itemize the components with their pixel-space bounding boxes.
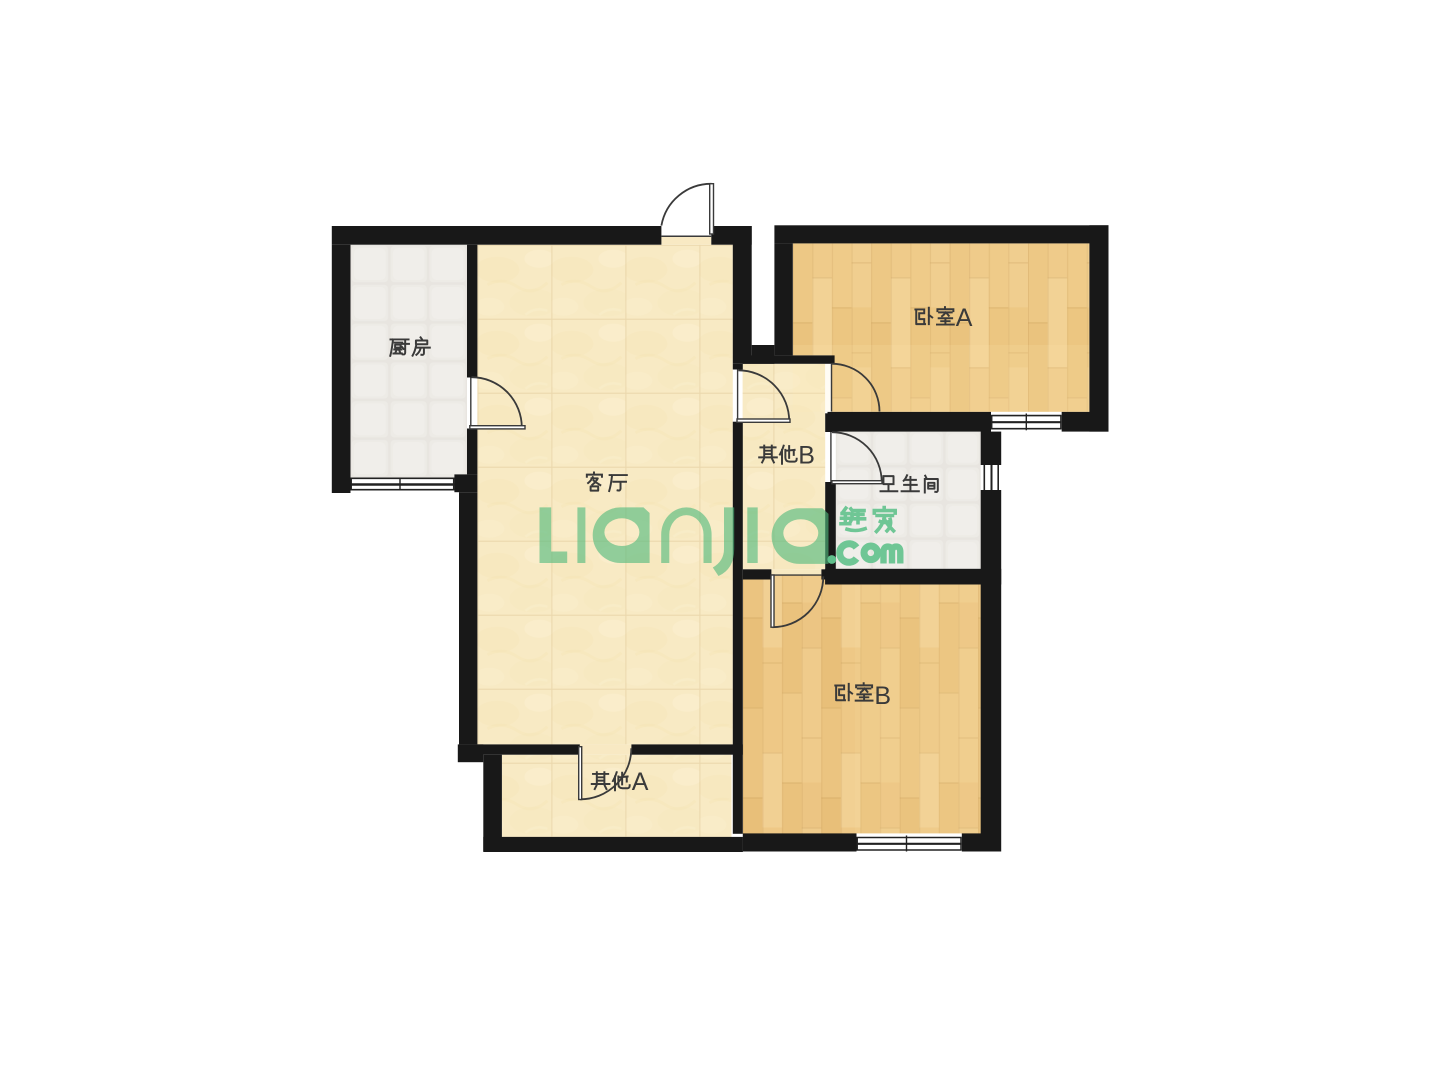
svg-text:A: A [632, 768, 649, 796]
svg-text:A: A [956, 304, 973, 332]
svg-text:B: B [874, 682, 891, 710]
svg-text:B: B [798, 442, 815, 470]
